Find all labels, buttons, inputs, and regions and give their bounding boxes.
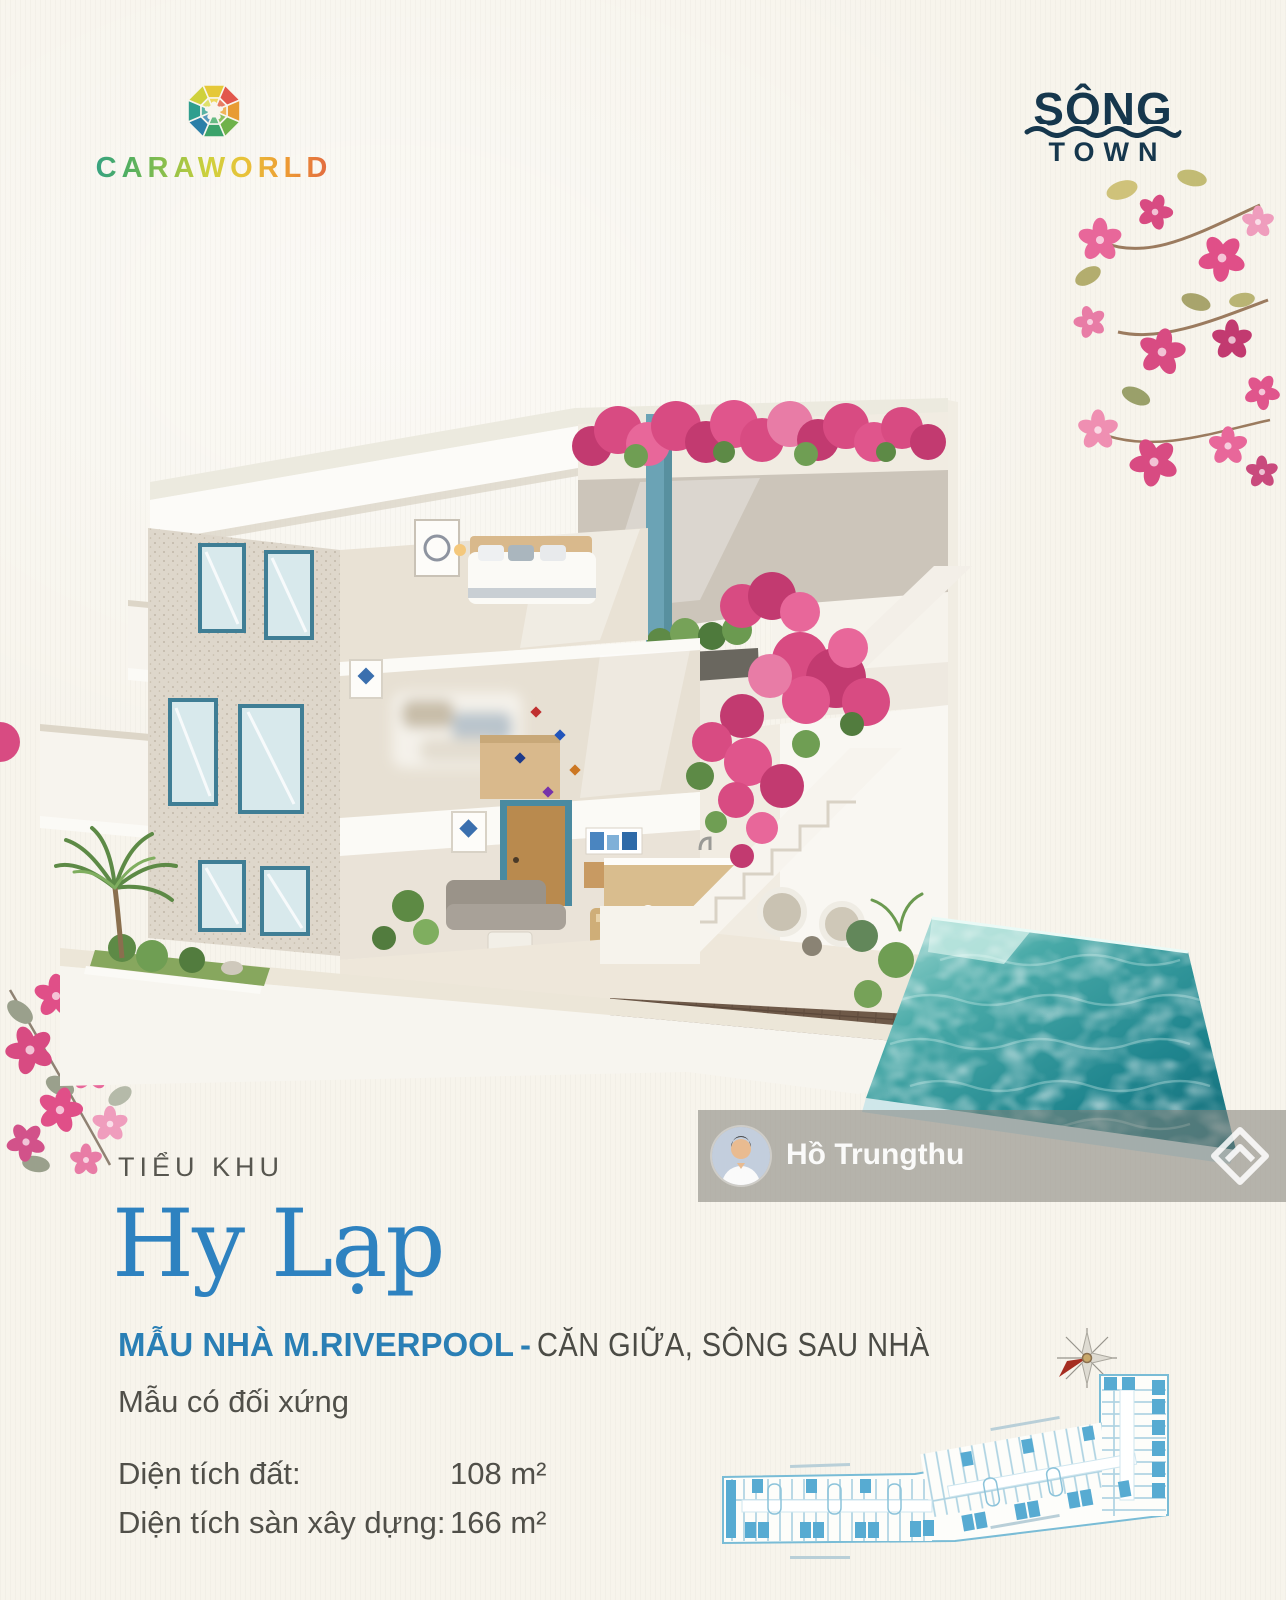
song-town-logo: SÔNG TOWN	[1008, 86, 1198, 166]
song-town-wordmark-bottom: TOWN	[1008, 139, 1198, 166]
floor-area-value: 166 m²	[450, 1505, 546, 1541]
caraworld-mosaic-emblem-icon	[182, 78, 246, 144]
agent-photo-avatar	[712, 1127, 770, 1185]
floor-area-label: Diện tích sàn xây dựng:	[118, 1505, 450, 1541]
avatar	[712, 1127, 770, 1185]
poster-canvas: Hồ Trungthu	[0, 0, 1286, 1600]
caraworld-wordmark: CARAWORLD	[84, 152, 344, 185]
floor-area-row: Diện tích sàn xây dựng: 166 m²	[118, 1505, 546, 1541]
villa-cutaway	[0, 398, 1240, 1164]
page-title: Hy Lạp	[112, 1186, 444, 1304]
model-line: MẪU NHÀ M.RIVERPOOL-CĂN GIỮA, SÔNG SAU N…	[118, 1326, 983, 1364]
land-area-value: 108 m²	[450, 1456, 546, 1492]
symmetry-note: Mẫu có đối xứng	[118, 1384, 349, 1420]
agent-watermark-band: Hồ Trungthu	[698, 1110, 1286, 1202]
caraworld-logo: CARAWORLD	[84, 78, 344, 185]
area-specs: Diện tích đất: 108 m² Diện tích sàn xây …	[118, 1456, 546, 1554]
model-position-note: CĂN GIỮA, SÔNG SAU NHÀ	[537, 1326, 930, 1364]
watercolor-flowers-top-right	[1066, 167, 1286, 498]
agent-name: Hồ Trungthu	[786, 1138, 964, 1172]
diamond-chevron-logo-icon	[1210, 1126, 1270, 1186]
land-area-row: Diện tích đất: 108 m²	[118, 1456, 546, 1492]
model-separator: -	[514, 1326, 537, 1363]
model-name: MẪU NHÀ M.RIVERPOOL	[118, 1326, 514, 1363]
site-plan-map	[723, 1375, 1168, 1559]
land-area-label: Diện tích đất:	[118, 1456, 450, 1492]
district-eyebrow: TIỂU KHU	[118, 1152, 284, 1183]
